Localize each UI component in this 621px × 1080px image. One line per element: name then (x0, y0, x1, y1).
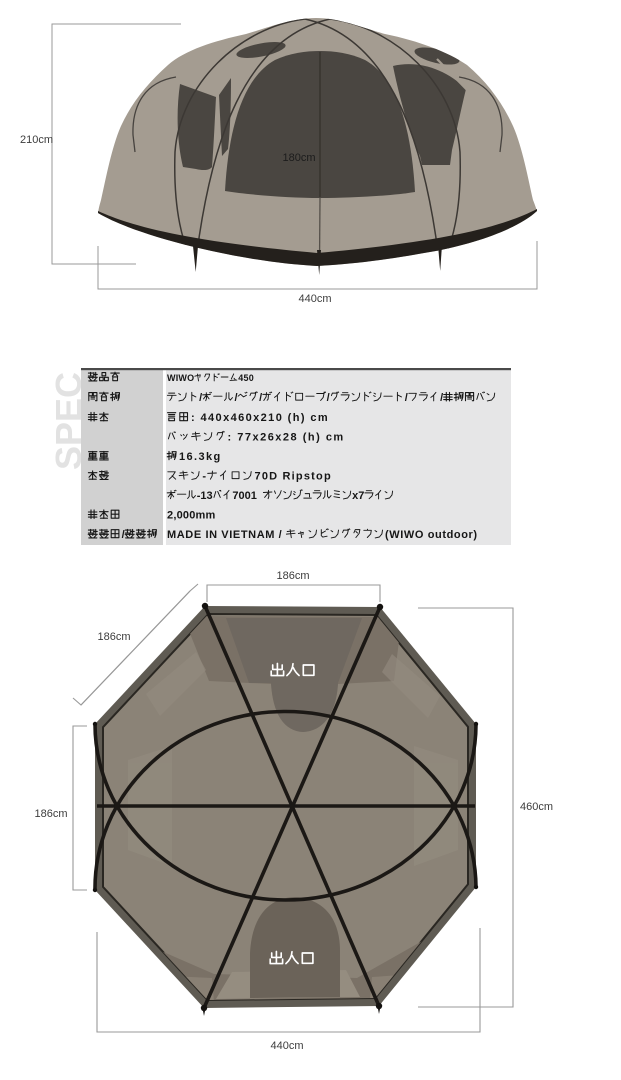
svg-text:/: / (235, 392, 238, 404)
svg-text:460cm: 460cm (520, 801, 553, 813)
svg-text:440cm: 440cm (270, 1040, 303, 1052)
svg-text:186cm: 186cm (34, 808, 67, 820)
svg-text:: 77x26x28 (h) cm: : 77x26x28 (h) cm (228, 432, 345, 444)
svg-text:2,000mm: 2,000mm (167, 510, 216, 522)
svg-text:7001: 7001 (232, 490, 256, 502)
svg-text:WIWO: WIWO (167, 373, 194, 383)
svg-text:440cm: 440cm (298, 293, 331, 305)
svg-text:186cm: 186cm (97, 631, 130, 643)
svg-text:210cm: 210cm (20, 134, 53, 146)
svg-text:16.3kg: 16.3kg (179, 451, 222, 463)
svg-text:70D Ripstop: 70D Ripstop (255, 471, 332, 483)
svg-text:/: / (405, 392, 408, 404)
svg-text:(WIWO outdoor): (WIWO outdoor) (385, 529, 478, 541)
svg-text:/: / (199, 392, 202, 404)
svg-text:MADE IN VIETNAM /: MADE IN VIETNAM / (167, 529, 282, 541)
svg-text:/: / (440, 392, 443, 404)
svg-text:: 440x460x210 (h) cm: : 440x460x210 (h) cm (191, 412, 329, 424)
svg-text:-: - (202, 471, 207, 483)
svg-text:/: / (122, 529, 125, 541)
svg-text:x7: x7 (352, 490, 364, 502)
svg-text:/: / (259, 392, 262, 404)
svg-text:450: 450 (238, 373, 254, 383)
svg-text:-13: -13 (197, 490, 213, 502)
svg-text:/: / (327, 392, 330, 404)
svg-text:180cm: 180cm (282, 152, 315, 164)
svg-text:186cm: 186cm (276, 570, 309, 582)
